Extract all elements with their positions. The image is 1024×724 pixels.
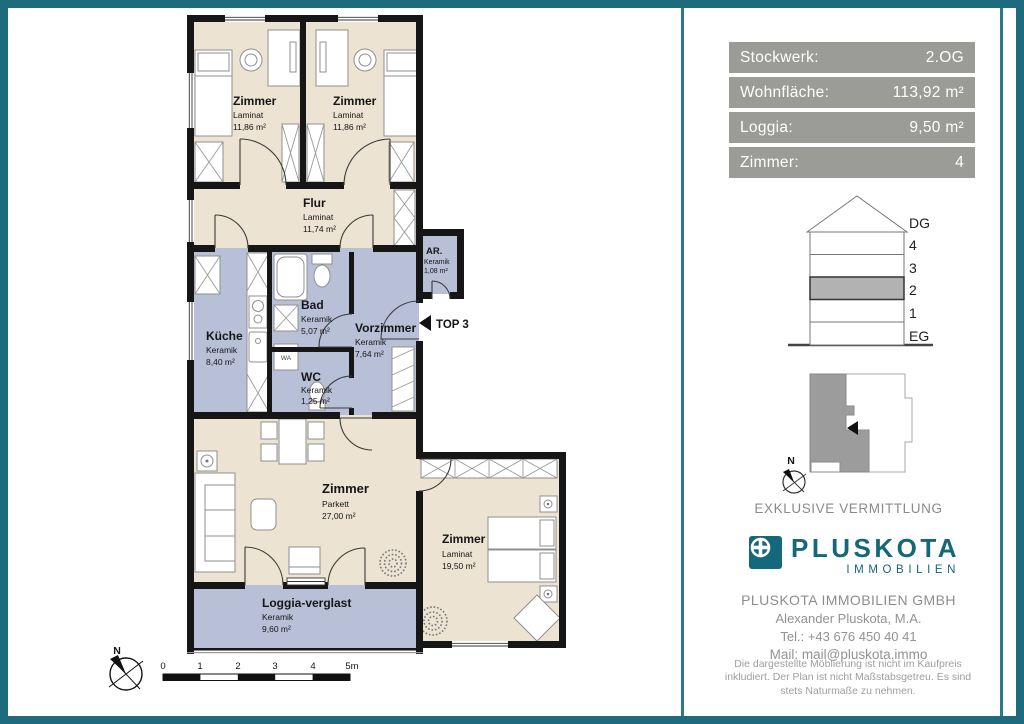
toilet-symbol (312, 254, 332, 264)
room-material: Parkett (322, 499, 350, 509)
room-area: 19,50 m² (442, 561, 476, 571)
scale-tick: 0 (160, 661, 165, 672)
room-material: Laminat (442, 549, 473, 559)
room-material: Laminat (333, 110, 364, 120)
loggia-footprint (811, 462, 840, 472)
room-area: 9,60 m² (262, 624, 291, 634)
pluskota-logo-icon (748, 535, 783, 570)
disclaimer-text: Die dargestellte Möblierung ist nicht im… (722, 658, 974, 698)
room-material: Keramik (301, 314, 333, 324)
room-name: Flur (303, 196, 326, 210)
info-value: 113,92 m² (893, 84, 964, 102)
info-label: Stockwerk: (740, 49, 819, 67)
company-logo: PLUSKOTA IMMOBILIEN (748, 535, 960, 576)
room-material: Keramik (206, 345, 238, 355)
room-material: Keramik (262, 612, 294, 622)
room-name: AR. (426, 246, 442, 257)
info-row-stockwerk: Stockwerk: 2.OG (729, 42, 975, 73)
exclusive-text: EXKLUSIVE VERMITTLUNG (700, 501, 997, 516)
contact-phone: Tel.: +43 676 450 40 41 (700, 629, 997, 644)
room-material: Keramik (355, 337, 387, 347)
room-area: 11,74 m² (303, 224, 336, 234)
washing-machine-label: WA (281, 355, 292, 362)
unit-entrance-marker: TOP 3 (419, 315, 469, 331)
scale-tick: 5m (345, 661, 358, 672)
info-label: Wohnfläche: (740, 84, 829, 102)
coffee-table-symbol (251, 499, 276, 530)
pillow-symbol (540, 520, 554, 546)
chair-symbol (308, 444, 324, 461)
info-row-wohnflaeche: Wohnfläche: 113,92 m² (729, 77, 975, 108)
room-area: 1,08 m² (424, 268, 448, 275)
building-section-diagram: DG 4 3 2 1 EG (783, 190, 943, 355)
panel-divider-right (1000, 8, 1003, 716)
window-symbol (287, 578, 325, 585)
logo-name: PLUSKOTA (791, 535, 960, 561)
room-name: WC (301, 370, 321, 384)
floor-label-3: 3 (909, 260, 917, 276)
panel-divider-left (681, 8, 684, 716)
window-symbol (187, 302, 194, 360)
room-material: Laminat (303, 212, 334, 222)
room-material: Laminat (233, 110, 264, 120)
scale-tick: 2 (235, 661, 240, 672)
north-label: N (787, 455, 795, 467)
room-name: Zimmer (233, 94, 277, 108)
contact-person: Alexander Pluskota, M.A. (700, 611, 997, 626)
armchair-symbol (289, 547, 320, 574)
room-area: 11,86 m² (333, 122, 366, 132)
shelf-symbol (392, 347, 414, 411)
info-row-loggia: Loggia: 9,50 m² (729, 112, 975, 143)
info-label: Zimmer: (740, 154, 799, 172)
room-loggia-floor (190, 585, 420, 649)
chair-symbol (308, 422, 324, 439)
chair-symbol (261, 422, 277, 439)
room-area: 27,00 m² (322, 511, 356, 521)
floor-label-1: 1 (909, 305, 917, 321)
chair-symbol (354, 49, 376, 71)
room-name: Zimmer (322, 481, 369, 496)
highlighted-floor-band (810, 277, 904, 300)
unit-label: TOP 3 (436, 319, 469, 331)
window-symbol (187, 200, 194, 242)
info-label: Loggia: (740, 119, 793, 137)
compass-icon (783, 469, 806, 493)
vorzimmer-furniture (392, 347, 414, 411)
window-symbol (338, 15, 378, 22)
room-name: Küche (206, 329, 243, 343)
floor-label-eg: EG (909, 328, 929, 344)
room-name: Loggia-verglast (262, 596, 351, 610)
info-row-zimmer: Zimmer: 4 (729, 147, 975, 178)
site-plan: N (778, 368, 928, 500)
entrance-arrow-icon (419, 315, 431, 331)
info-value: 4 (955, 154, 964, 172)
room-area: 1,25 m² (301, 396, 330, 406)
pillow-symbol (387, 53, 418, 71)
room-name: Vorzimmer (355, 321, 416, 335)
scale-tick: 1 (197, 661, 202, 672)
room-area: 8,40 m² (206, 357, 235, 367)
floor-label-2: 2 (909, 282, 917, 298)
room-material: Keramik (301, 385, 333, 395)
room-name: Bad (301, 298, 324, 312)
bathtub-symbol (274, 254, 307, 300)
pillow-symbol (198, 53, 229, 71)
info-value: 2.OG (926, 49, 964, 67)
scale-tick: 3 (272, 661, 277, 672)
contact-company: PLUSKOTA IMMOBILIEN GMBH (700, 592, 997, 608)
room-material: Keramik (424, 259, 450, 266)
compass-icon: N (109, 645, 143, 690)
floor-label-dg: DG (909, 215, 930, 231)
chair-symbol (240, 49, 262, 71)
pillow-symbol (540, 553, 554, 579)
logo-text: PLUSKOTA IMMOBILIEN (791, 535, 960, 576)
flur-furniture (394, 190, 415, 246)
scale-bar: 0 1 2 3 4 5m (160, 661, 358, 681)
wardrobe-symbol (394, 190, 415, 246)
unit-footprint (810, 374, 869, 472)
floorplan-page: WA (0, 0, 1024, 724)
room-name: Zimmer (333, 94, 377, 108)
room-area: 5,07 m² (301, 326, 330, 336)
room-area: 7,64 m² (355, 349, 384, 359)
chair-symbol (261, 444, 277, 461)
floor-label-4: 4 (909, 237, 917, 253)
floor-plan: WA (0, 0, 700, 724)
sofa-symbol (195, 473, 235, 572)
window-symbol (187, 73, 194, 128)
window-symbol (225, 15, 265, 22)
contact-block: PLUSKOTA IMMOBILIEN GMBH Alexander Plusk… (700, 592, 997, 662)
room-area: 11,86 m² (233, 122, 266, 132)
north-label: N (113, 645, 121, 657)
dining-table-symbol (279, 419, 306, 464)
window-symbol (452, 641, 508, 648)
scale-tick: 4 (310, 661, 315, 672)
logo-subtitle: IMMOBILIEN (846, 564, 960, 576)
room-name: Zimmer (442, 532, 486, 546)
roof-shape (807, 196, 907, 232)
info-value: 9,50 m² (909, 119, 964, 137)
